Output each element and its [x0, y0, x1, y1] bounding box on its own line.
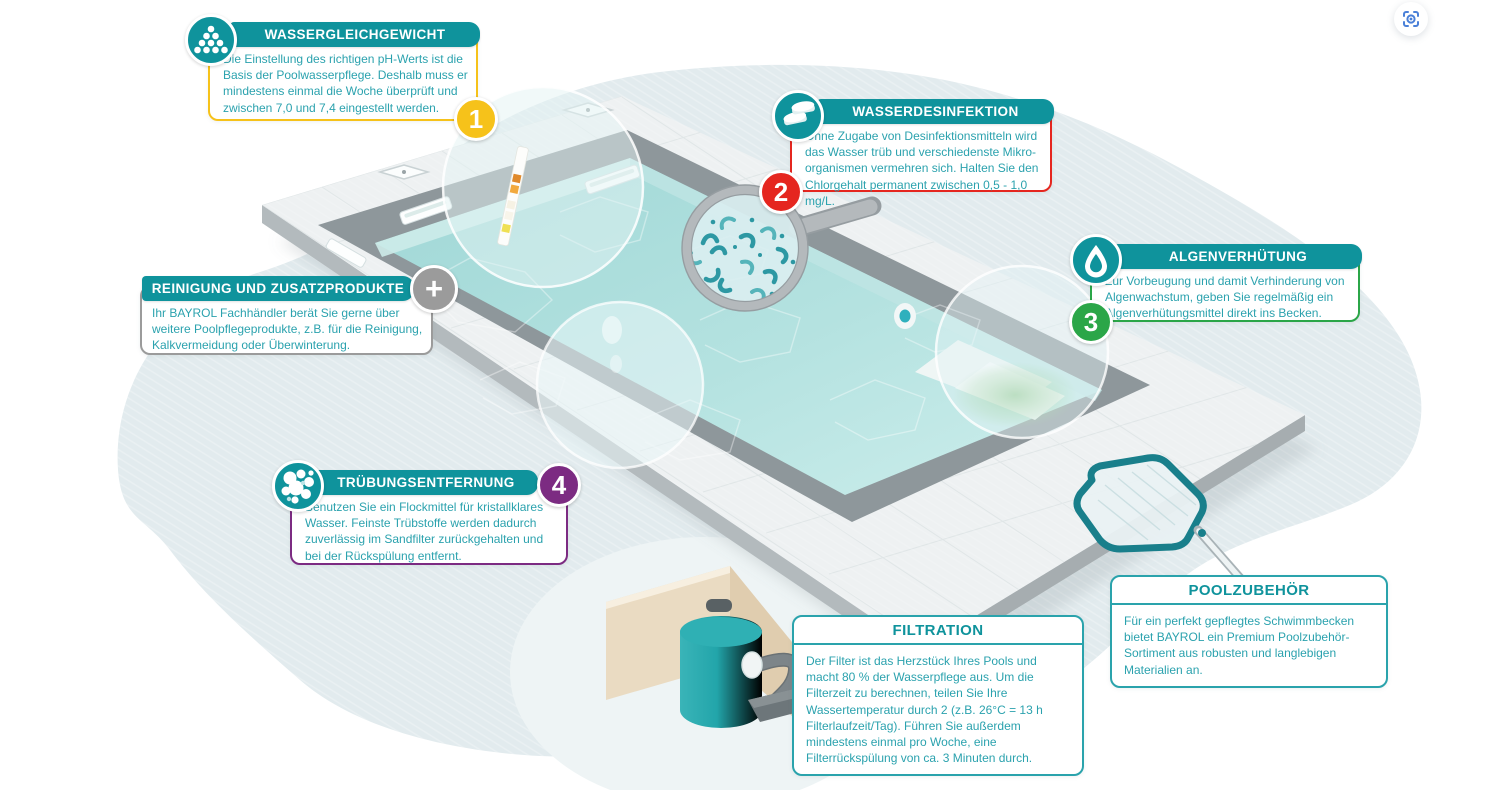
filter-cap: [706, 599, 732, 612]
algae-lens: [936, 266, 1108, 438]
callout-title: POOLZUBEHÖR: [1112, 577, 1386, 605]
floc-particles-icon: [272, 460, 324, 512]
callout-title: WASSERGLEICHGEWICHT: [230, 22, 480, 47]
chlorine-tablets-icon: [772, 90, 824, 142]
callout-title: TRÜBUNGSENTFERNUNG: [314, 470, 538, 495]
callout-algenverhuetung: ALGENVERHÜTUNG Zur Vorbeugung und damit …: [1090, 254, 1360, 322]
callout-reinigung-zusatzprodukte: REINIGUNG UND ZUSATZPRODUKTE Ihr BAYROL …: [140, 286, 433, 355]
callout-poolzubehoer: POOLZUBEHÖR Für ein perfekt gepflegtes S…: [1110, 575, 1388, 688]
step-badge-3: 3: [1069, 300, 1113, 344]
callout-title: ALGENVERHÜTUNG: [1114, 244, 1362, 269]
net-ferrule: [1198, 529, 1206, 537]
step-badge-2: 2: [759, 170, 803, 214]
granules-icon: [185, 14, 237, 66]
image-search-icon: [1400, 8, 1422, 30]
callout-filtration: FILTRATION Der Filter ist das Herzstück …: [792, 615, 1084, 776]
callout-body: Benutzen Sie ein Flockmittel für kristal…: [292, 482, 566, 570]
callout-body: Ohne Zugabe von Desinfektionsmitteln wir…: [792, 111, 1050, 215]
pool-drain: [894, 303, 916, 329]
callout-body: Für ein perfekt gepflegtes Schwimmbecken…: [1112, 605, 1386, 686]
step-badge-1: 1: [454, 97, 498, 141]
step-badge-4: 4: [537, 463, 581, 507]
callout-title: REINIGUNG UND ZUSATZPRODUKTE: [142, 276, 414, 301]
callout-title: FILTRATION: [794, 617, 1082, 645]
callout-wassergleichgewicht: WASSERGLEICHGEWICHT Die Einstellung des …: [208, 32, 478, 121]
water-drop-icon: [1070, 234, 1122, 286]
callout-wasserdesinfektion: WASSERDESINFEKTION Ohne Zugabe von Desin…: [790, 109, 1052, 192]
callout-truebungsentfernung: TRÜBUNGSENTFERNUNG Benutzen Sie ein Floc…: [290, 480, 568, 565]
callout-body: Der Filter ist das Herzstück Ihres Pools…: [794, 645, 1082, 774]
pool-care-infographic: WASSERGLEICHGEWICHT Die Einstellung des …: [0, 0, 1500, 790]
plus-badge: +: [410, 265, 458, 313]
callout-body: Die Einstellung des richtigen pH-Werts i…: [210, 34, 476, 122]
callout-title: WASSERDESINFEKTION: [817, 99, 1054, 124]
clear-water-lens: [537, 302, 703, 468]
image-search-button[interactable]: [1394, 2, 1428, 36]
